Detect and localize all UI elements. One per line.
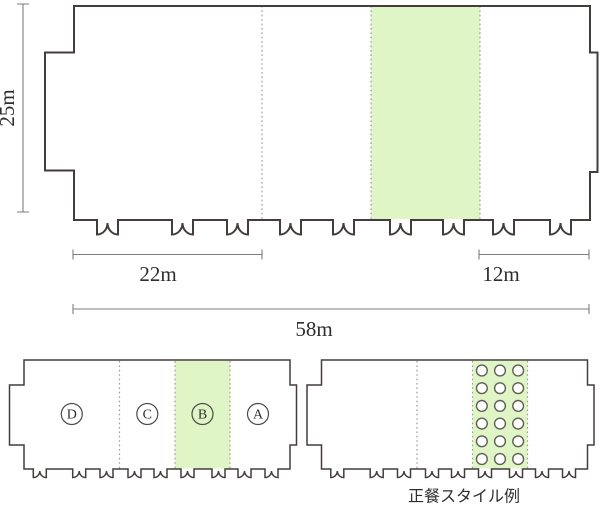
dimension-total-width: 58m [73, 304, 589, 341]
hall-outline-with-door-symbols [45, 6, 598, 235]
dinner-table-circle [476, 383, 487, 394]
dinner-table-circle [476, 401, 487, 412]
floor-plan-diagram: 25m 22m 12m 58m D C B A [0, 0, 600, 510]
right-dimension-label: 12m [482, 262, 519, 286]
total-dimension-label: 58m [295, 317, 332, 341]
section-d-letter: D [67, 408, 77, 423]
dinner-table-circle [513, 401, 524, 412]
section-b-letter: B [198, 408, 207, 423]
left-dimension-line [73, 250, 262, 260]
dinner-table-circle [513, 365, 524, 376]
section-label-d: D [61, 404, 82, 425]
dinner-table-circle [476, 436, 487, 447]
dinner-table-circle [476, 365, 487, 376]
dinner-style-plan: 正餐スタイル例 [307, 360, 594, 506]
dinner-style-caption: 正餐スタイル例 [408, 488, 520, 506]
height-dimension-label: 25m [0, 89, 19, 126]
dinner-table-circle [495, 365, 506, 376]
dinner-table-circle [495, 454, 506, 465]
left-dimension-label: 22m [139, 262, 176, 286]
main-floor-plan [45, 6, 598, 235]
dinner-table-circle [513, 383, 524, 394]
dinner-table-circle [513, 454, 524, 465]
dinner-table-circle [495, 436, 506, 447]
dinner-table-circle [513, 418, 524, 429]
dinner-table-circle [495, 401, 506, 412]
dinner-table-circle [476, 454, 487, 465]
right-dimension-line [479, 250, 589, 260]
dimension-left-section: 22m [73, 250, 262, 287]
dinner-table-circle [495, 383, 506, 394]
dinner-table-circle [513, 436, 524, 447]
section-plan: D C B A [10, 360, 297, 478]
dinner-plan-outline [307, 360, 594, 478]
dimension-height: 25m [0, 4, 29, 212]
highlighted-band-b [371, 7, 480, 219]
section-a-letter: A [253, 408, 264, 423]
dinner-table-circle [476, 418, 487, 429]
section-label-c: C [137, 404, 158, 425]
dinner-highlight-band [473, 361, 528, 469]
section-label-a: A [248, 404, 269, 425]
dimension-right-section: 12m [479, 250, 589, 287]
total-dimension-line [73, 304, 589, 314]
floor-plan-canvas: 25m 22m 12m 58m D C B A [0, 0, 600, 510]
dinner-table-circle [495, 418, 506, 429]
section-c-letter: C [143, 408, 152, 423]
